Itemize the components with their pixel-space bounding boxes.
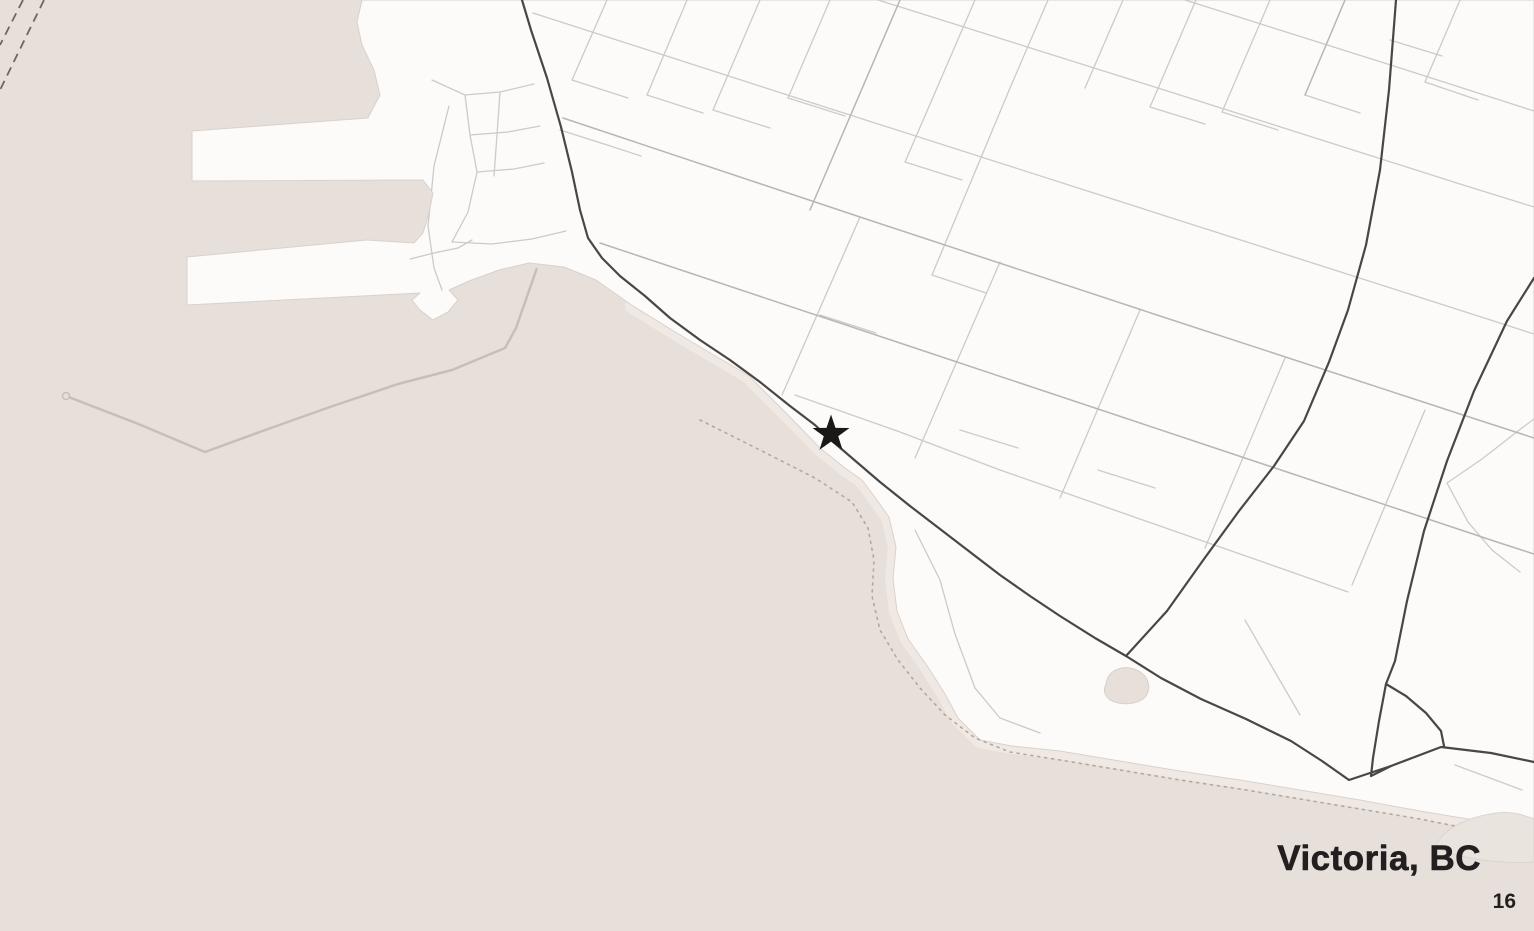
map-title: Victoria, BC — [1277, 841, 1481, 876]
page-number: 16 — [1493, 891, 1516, 912]
breakwater-end-icon — [63, 393, 70, 400]
map-page: Victoria, BC 16 — [0, 0, 1534, 931]
pond — [1104, 668, 1148, 704]
victoria-map — [0, 0, 1534, 931]
